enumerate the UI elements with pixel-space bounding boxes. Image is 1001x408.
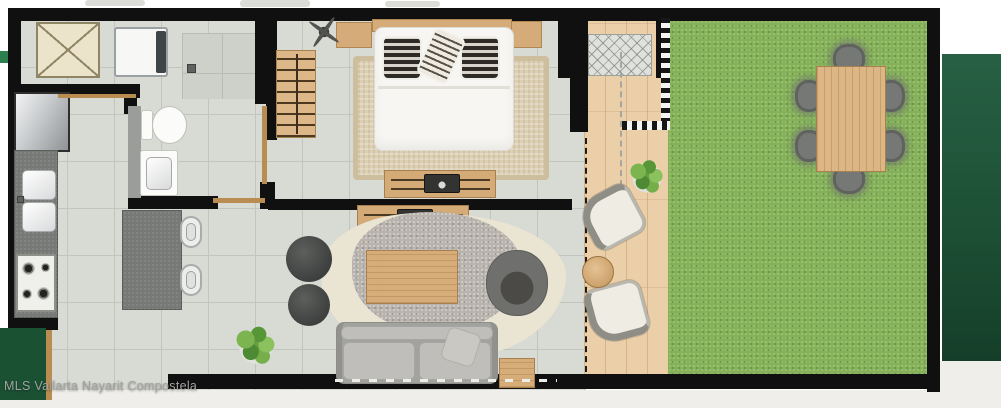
right-green-band: [942, 54, 1001, 361]
sliding-door-bedroom-deck: [620, 52, 623, 186]
sink-basin-lower: [22, 202, 56, 232]
washer-control-panel: [156, 31, 166, 73]
stove-burner-2: [40, 262, 51, 273]
closet: [36, 22, 100, 78]
pouf-large: [286, 236, 332, 282]
wall-bath-bottom: [128, 196, 218, 209]
sliding-door-deck: [585, 138, 588, 372]
wall-deck-left-upper: [558, 8, 588, 78]
sliding-door-living: [335, 379, 557, 382]
bar-stool-2: [180, 264, 202, 296]
tile-border-strip-vertical: [661, 18, 670, 130]
wall-bath-right-top: [256, 84, 274, 104]
top-smudge-1: [85, 0, 145, 6]
sofa-seat-cushion-1: [343, 342, 415, 380]
wall-deck-left-mid: [570, 78, 588, 132]
slatted-bench: [276, 50, 316, 138]
bathroom-sink-basin: [146, 157, 172, 190]
stove-burner-1: [21, 261, 36, 276]
deck-side-table: [582, 256, 614, 288]
toilet-bowl: [152, 106, 187, 144]
door-closet: [58, 94, 136, 98]
tile-border-strip-horizontal: [622, 121, 670, 130]
floorplan-image: MLS Vallarta Nayarit Compostela: [0, 0, 1001, 408]
pillow-dark-right: [460, 36, 500, 80]
garden-dining-table: [816, 66, 886, 172]
door-bathroom: [213, 198, 265, 203]
bar-stool-1: [180, 216, 202, 248]
nightstand-right: [510, 21, 542, 48]
sink-basin-upper: [22, 170, 56, 200]
coffee-table: [366, 250, 458, 304]
tv-bedroom: [424, 174, 460, 193]
top-smudge-3: [385, 1, 440, 7]
stove-burner-3: [21, 288, 33, 300]
sink-faucet: [17, 196, 24, 203]
stove-burner-4: [36, 286, 51, 301]
side-table: [499, 358, 535, 388]
pouf-small: [288, 284, 330, 326]
top-smudge-2: [240, 0, 310, 7]
armchair: [486, 250, 548, 316]
pillow-dark-left: [382, 36, 422, 80]
right-bottom-light: [940, 361, 1001, 408]
kitchen-island: [122, 210, 182, 310]
grass-lawn: [668, 20, 928, 378]
shower-drain: [187, 64, 196, 73]
bed-fold-line: [378, 86, 510, 89]
plant-living-room: [230, 322, 282, 372]
door-bedroom: [262, 106, 267, 184]
watermark-text: MLS Vallarta Nayarit Compostela: [4, 379, 197, 393]
wall-right: [927, 8, 940, 392]
refrigerator: [14, 92, 70, 152]
